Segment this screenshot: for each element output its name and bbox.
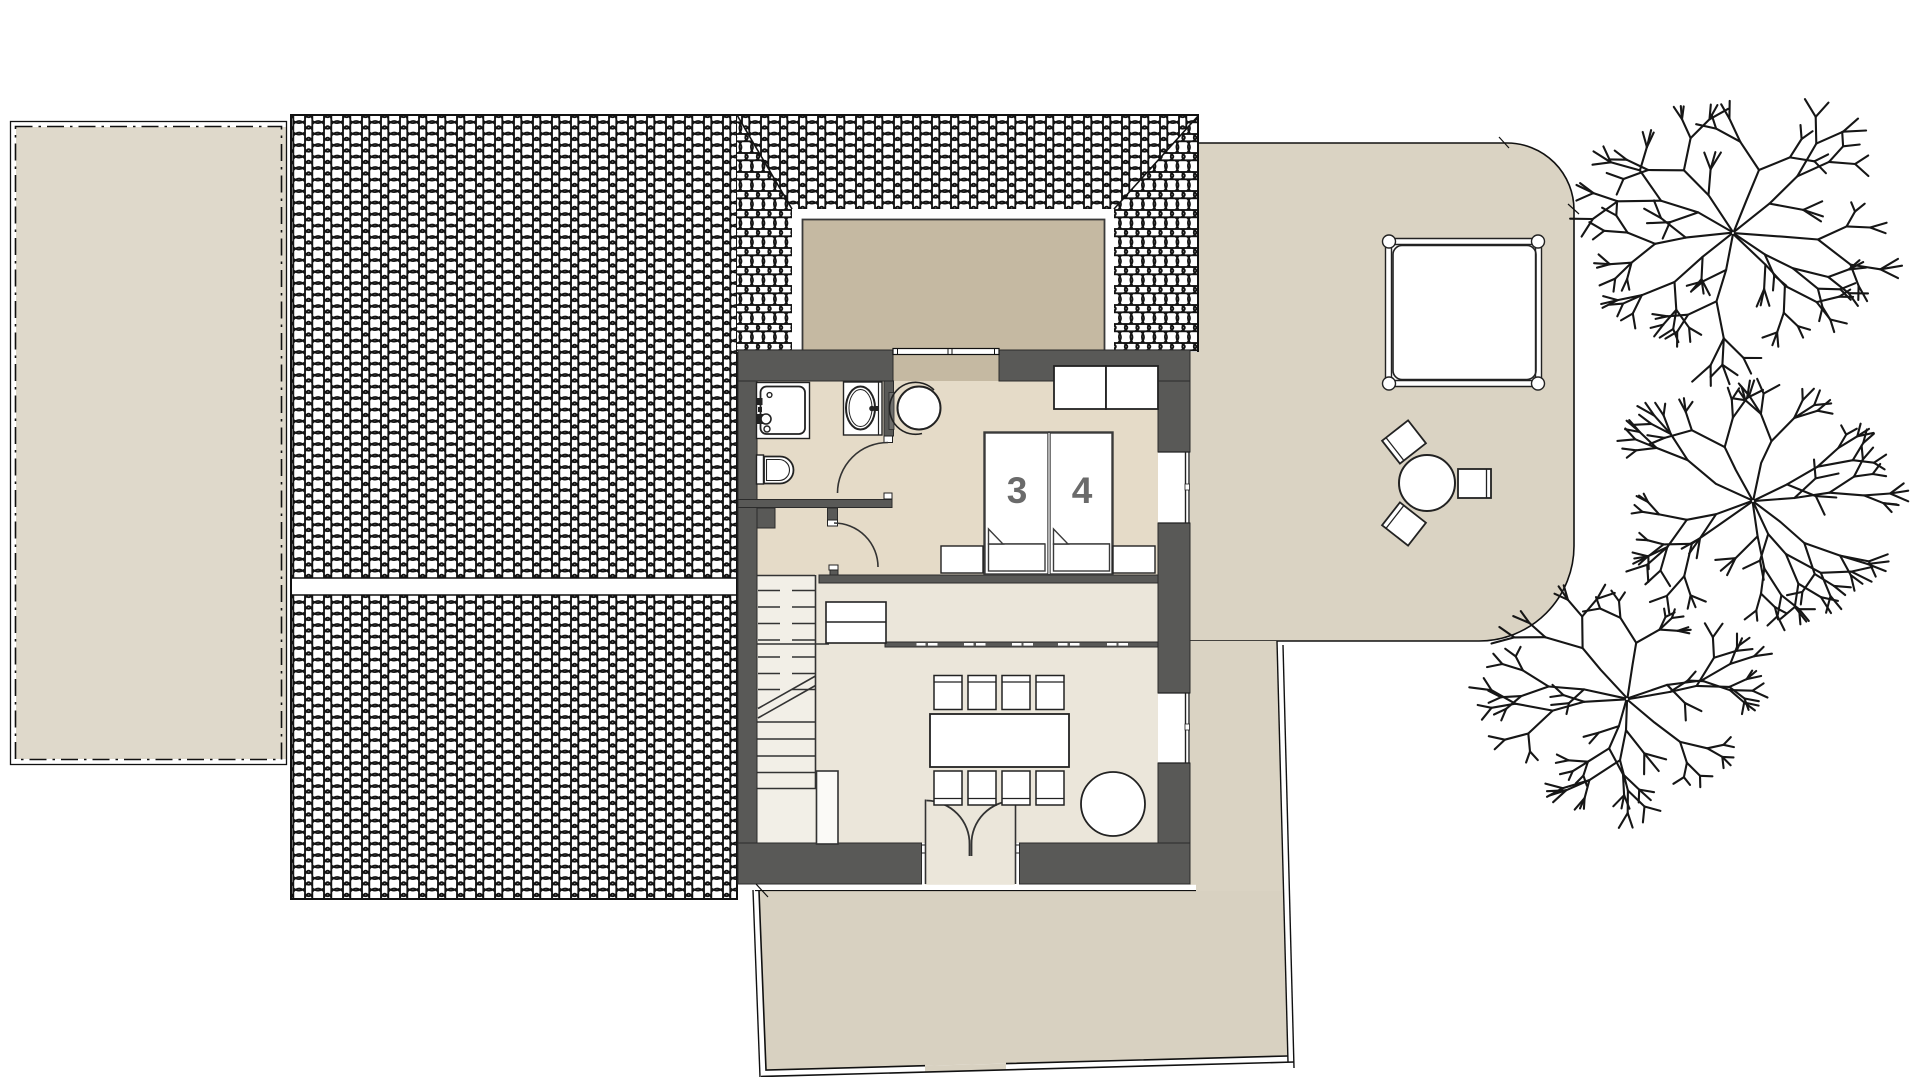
svg-text:3: 3 [1007, 470, 1028, 511]
svg-text:4: 4 [1072, 470, 1093, 511]
